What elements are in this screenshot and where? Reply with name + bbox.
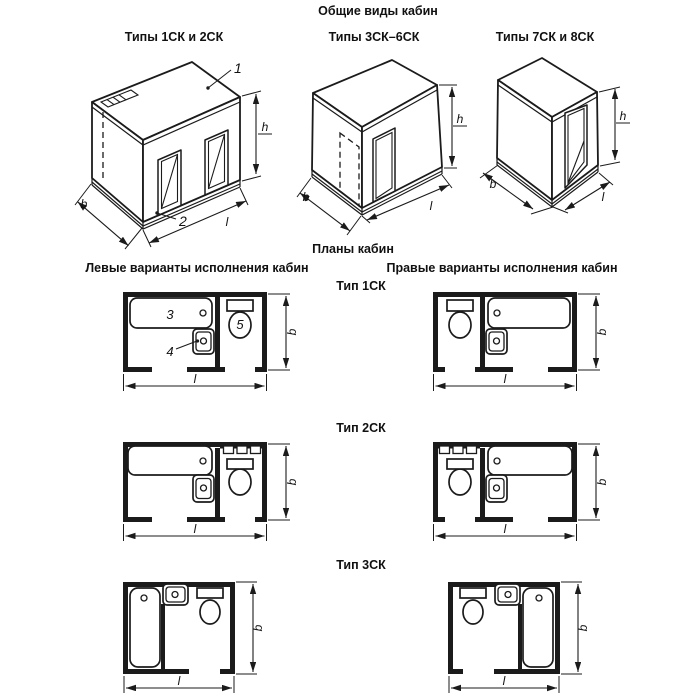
- plan-1sk-right: b l: [420, 285, 615, 397]
- dimension-l: l: [434, 522, 577, 541]
- dimension-h: h: [439, 85, 467, 168]
- callout-5-label: 5: [236, 317, 244, 332]
- iso-view-7sk-8sk: b l h: [470, 55, 650, 215]
- cabin-plan-room-mirrored: [448, 582, 560, 674]
- callout-3-label: 3: [166, 307, 174, 322]
- dimension-b: b: [268, 444, 299, 520]
- plan-2sk-left: b l: [110, 435, 305, 547]
- bathtub-shape: [128, 446, 212, 475]
- cabin-plan-room-mirrored: [433, 292, 577, 372]
- partition-wall: [215, 297, 220, 372]
- plan-3sk-left: b l: [105, 570, 270, 700]
- cabin-body: [92, 62, 240, 229]
- iso-label-3sk-6sk: Типы 3СК–6СК: [329, 30, 420, 44]
- cabin-body: [312, 60, 442, 215]
- iso-view-1sk-2sk: 1 2 b l h: [55, 50, 277, 250]
- vent-block-shape: [220, 442, 267, 454]
- callout-1-label: 1: [234, 60, 242, 76]
- dimension-b-label: b: [576, 624, 590, 631]
- door-right-shape: [205, 130, 228, 195]
- dimension-l-label: l: [178, 674, 181, 688]
- sink-shape: [193, 475, 214, 502]
- toilet-shape: [227, 459, 253, 495]
- cabin-plan-room: [123, 442, 267, 522]
- type-3sk-label: Тип 3СК: [336, 558, 385, 572]
- iso-label-7sk-8sk: Типы 7СК и 8СК: [496, 30, 594, 44]
- type-1sk-label: Тип 1СК: [336, 279, 385, 293]
- dimension-l-label: l: [504, 522, 507, 536]
- cabin-body: [497, 58, 598, 207]
- callout-4-label: 4: [166, 344, 173, 359]
- dimension-l: l: [449, 674, 559, 693]
- type-2sk-label: Тип 2СК: [336, 421, 385, 435]
- dimension-l-label: l: [602, 190, 605, 204]
- dimension-b-label: b: [490, 177, 497, 191]
- dimension-b: b: [236, 582, 265, 674]
- dimension-l-label: l: [226, 215, 229, 229]
- dimension-h-label: h: [457, 112, 464, 126]
- dimension-l: l: [124, 522, 267, 541]
- door-left-shape: [158, 150, 181, 216]
- door-shape: [373, 128, 395, 202]
- partition-wall: [161, 604, 165, 674]
- left-variants-label: Левые варианты исполнения кабин: [85, 261, 308, 275]
- dimension-b-label: b: [595, 328, 609, 335]
- toilet-shape: [197, 588, 223, 624]
- dimension-b-label: b: [251, 624, 265, 631]
- callout-5: 5: [236, 317, 244, 332]
- dimension-b: b: [578, 294, 609, 370]
- dimension-b: b: [561, 582, 590, 674]
- plans-title: Планы кабин: [312, 242, 394, 256]
- cabin-plan-room-mirrored: [433, 442, 577, 522]
- dimension-b-label: b: [303, 190, 310, 204]
- partition-wall: [215, 448, 220, 522]
- drawing-sheet: Общие виды кабин Типы 1СК и 2СК Типы 3СК…: [0, 0, 700, 700]
- dimension-l: l: [124, 674, 234, 693]
- dimension-b: b: [578, 444, 609, 520]
- dimension-l-label: l: [194, 522, 197, 536]
- dimension-b-label: b: [285, 328, 299, 335]
- dimension-h: h: [242, 91, 272, 181]
- dimension-b-label: b: [595, 478, 609, 485]
- callout-3: 3: [166, 307, 174, 322]
- dimension-l: l: [434, 372, 577, 391]
- plan-3sk-right: b l: [430, 570, 595, 700]
- plan-2sk-right: b l: [420, 435, 615, 547]
- dimension-h-label: h: [262, 120, 269, 134]
- sink-shape: [163, 584, 188, 605]
- dimension-b-label: b: [81, 197, 88, 211]
- page-title: Общие виды кабин: [318, 4, 438, 18]
- dimension-b: b: [268, 294, 299, 370]
- dimension-h: h: [599, 87, 630, 166]
- dimension-l-label: l: [194, 372, 197, 386]
- cabin-plan-room: [123, 292, 267, 372]
- cabin-plan-room: [123, 582, 235, 674]
- dimension-b-label: b: [285, 478, 299, 485]
- dimension-l-label: l: [430, 199, 433, 213]
- dimension-l: l: [124, 372, 267, 391]
- right-variants-label: Правые варианты исполнения кабин: [386, 261, 617, 275]
- bathtub-shape: [130, 588, 160, 667]
- iso-view-3sk-6sk: b l h: [285, 55, 469, 225]
- dimension-l-label: l: [504, 372, 507, 386]
- iso-label-1sk-2sk: Типы 1СК и 2СК: [125, 30, 223, 44]
- dimension-l-label: l: [503, 674, 506, 688]
- dimension-h-label: h: [620, 109, 627, 123]
- plan-1sk-left: 3 4 5 b l: [110, 285, 305, 397]
